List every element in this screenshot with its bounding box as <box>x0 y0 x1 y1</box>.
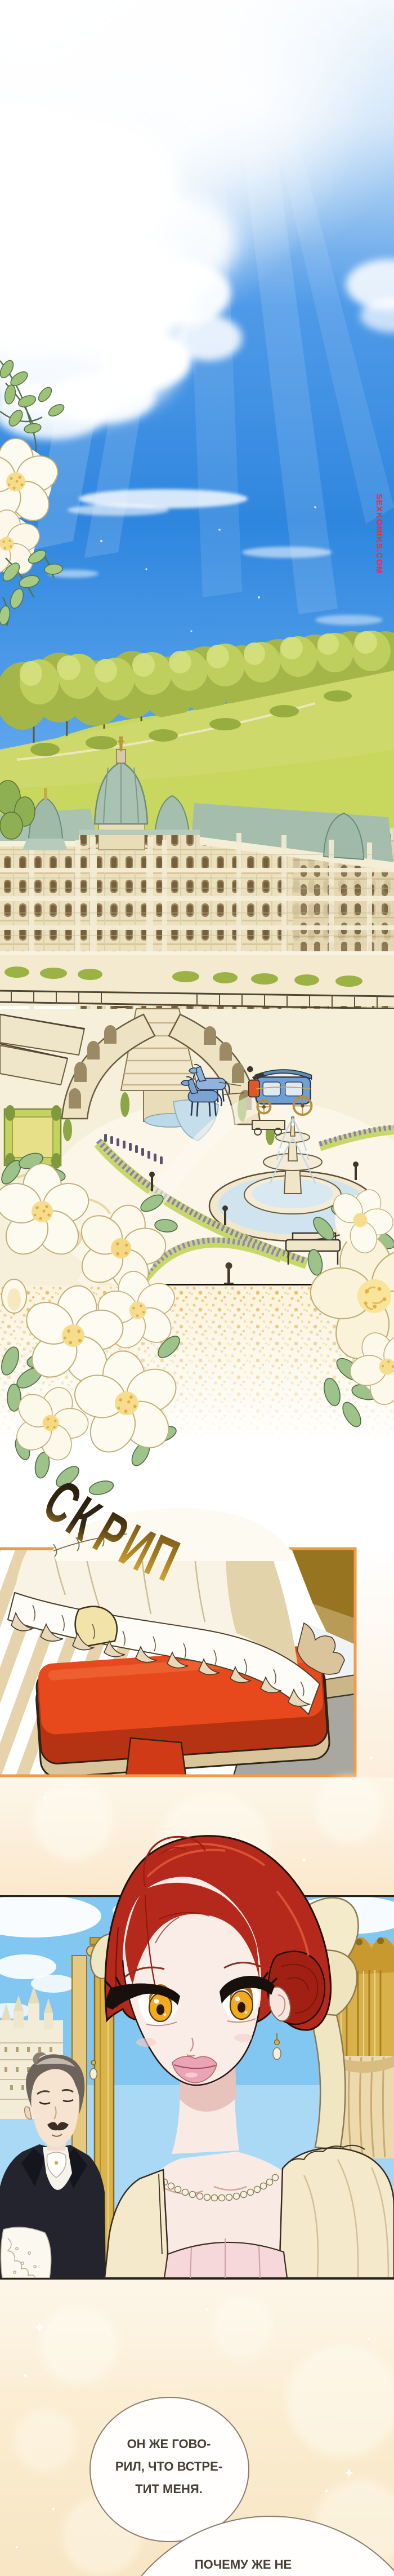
svg-text:ТИТ МЕНЯ.: ТИТ МЕНЯ. <box>135 2482 203 2496</box>
svg-text:ПОЧЕМУ ЖЕ НЕ: ПОЧЕМУ ЖЕ НЕ <box>195 2557 292 2571</box>
svg-text:SEXKOMIKS.COM: SEXKOMIKS.COM <box>374 494 384 574</box>
svg-text:ОН ЖЕ ГОВО-: ОН ЖЕ ГОВО- <box>127 2437 211 2451</box>
svg-text:РИЛ, ЧТО ВСТРЕ-: РИЛ, ЧТО ВСТРЕ- <box>115 2459 222 2473</box>
